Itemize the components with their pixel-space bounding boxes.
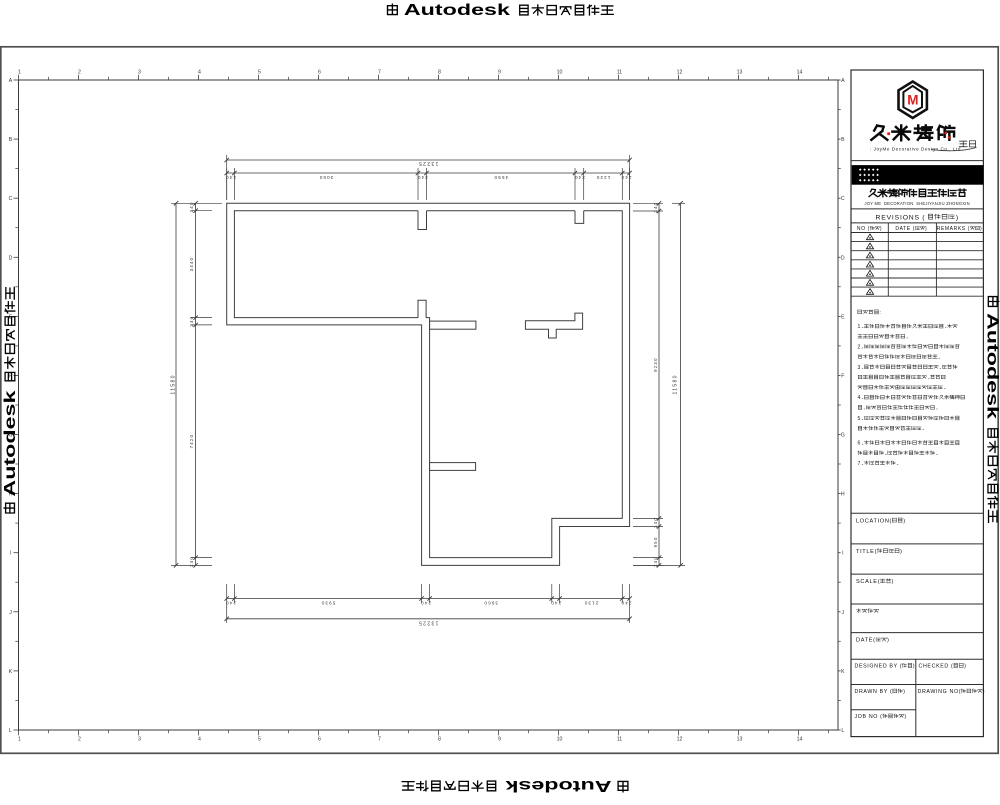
svg-text:Autodesk: Autodesk xyxy=(2,390,19,497)
svg-text:Autodesk: Autodesk xyxy=(505,777,612,794)
svg-text:B: B xyxy=(841,137,845,143)
svg-text:13225: 13225 xyxy=(418,160,439,166)
svg-text:7420: 7420 xyxy=(189,434,194,449)
svg-text:13: 13 xyxy=(737,737,743,743)
svg-text:): ) xyxy=(913,664,915,670)
svg-text:2: 2 xyxy=(78,737,81,743)
svg-text:I: I xyxy=(10,551,11,557)
svg-text:LOCATION(: LOCATION( xyxy=(856,518,892,524)
svg-text:Autodesk: Autodesk xyxy=(404,2,511,19)
svg-text:240: 240 xyxy=(653,202,658,213)
svg-text:C: C xyxy=(841,196,845,202)
svg-text:J: J xyxy=(9,610,12,616)
svg-text:): ) xyxy=(983,689,985,695)
svg-text:6: 6 xyxy=(318,737,321,743)
svg-text:10: 10 xyxy=(557,70,563,76)
svg-text:DATE(: DATE( xyxy=(856,638,876,644)
svg-text:I: I xyxy=(842,551,843,557)
svg-text:J: J xyxy=(842,610,845,616)
svg-text:): ) xyxy=(956,214,959,221)
svg-text:1220: 1220 xyxy=(596,175,611,180)
svg-text:TITLE(: TITLE( xyxy=(856,549,877,555)
svg-text:F: F xyxy=(841,373,844,379)
svg-text:11: 11 xyxy=(617,737,622,743)
svg-text:H: H xyxy=(841,492,845,498)
svg-text:D: D xyxy=(841,255,845,261)
svg-text:CHECKED (: CHECKED ( xyxy=(919,664,954,670)
svg-text:11580: 11580 xyxy=(171,374,177,394)
svg-text:12: 12 xyxy=(677,737,683,743)
svg-text:): ) xyxy=(903,518,906,524)
svg-text:5: 5 xyxy=(858,416,861,422)
svg-text:240: 240 xyxy=(420,600,431,605)
svg-text:240: 240 xyxy=(574,175,585,180)
svg-text:REMARKS (: REMARKS ( xyxy=(937,226,970,232)
svg-text:240: 240 xyxy=(621,175,632,180)
svg-text:10: 10 xyxy=(557,737,563,743)
svg-text:DATE (: DATE ( xyxy=(895,226,915,232)
svg-text:D: D xyxy=(9,255,13,261)
svg-text:): ) xyxy=(880,226,882,232)
svg-text:1: 1 xyxy=(18,70,21,76)
svg-text:A: A xyxy=(9,78,13,84)
svg-text:7: 7 xyxy=(378,737,381,743)
svg-text:3: 3 xyxy=(138,70,141,76)
svg-text:2: 2 xyxy=(78,70,81,76)
svg-text:240: 240 xyxy=(189,202,194,213)
svg-text:4: 4 xyxy=(858,395,861,401)
svg-text:1: 1 xyxy=(858,324,861,330)
svg-text:11: 11 xyxy=(617,70,622,76)
svg-text:4590: 4590 xyxy=(493,175,508,180)
svg-text:7: 7 xyxy=(858,461,861,467)
svg-text:3960: 3960 xyxy=(483,600,498,605)
svg-text:8: 8 xyxy=(438,737,441,743)
svg-text:240: 240 xyxy=(653,517,658,528)
svg-text:9: 9 xyxy=(498,737,501,743)
svg-text:12: 12 xyxy=(677,70,683,76)
svg-text:M: M xyxy=(907,93,918,108)
svg-text:REVISIONS: REVISIONS xyxy=(876,214,920,221)
svg-text:240: 240 xyxy=(189,556,194,567)
svg-text:A: A xyxy=(841,78,845,84)
svg-text:5: 5 xyxy=(258,70,261,76)
svg-text:): ) xyxy=(980,226,982,232)
svg-text:5930: 5930 xyxy=(321,600,336,605)
svg-text:): ) xyxy=(900,549,903,555)
svg-text:): ) xyxy=(903,689,905,695)
svg-text:2130: 2130 xyxy=(584,600,599,605)
svg-text:L: L xyxy=(9,728,12,734)
svg-text:JOB NO (: JOB NO ( xyxy=(855,714,883,720)
svg-text:DESIGNED BY (: DESIGNED BY ( xyxy=(855,664,903,670)
svg-text:3060: 3060 xyxy=(319,175,334,180)
svg-text:8: 8 xyxy=(438,70,441,76)
svg-text:K: K xyxy=(841,669,845,675)
svg-text::: : xyxy=(879,310,881,316)
svg-text:1: 1 xyxy=(18,737,21,743)
svg-text:C: C xyxy=(9,196,13,202)
svg-text:): ) xyxy=(964,664,966,670)
svg-text:5: 5 xyxy=(258,737,261,743)
svg-text:E: E xyxy=(841,314,845,320)
svg-text:14: 14 xyxy=(797,70,803,76)
svg-text:13: 13 xyxy=(737,70,743,76)
svg-text:240: 240 xyxy=(417,175,428,180)
svg-text:13225: 13225 xyxy=(418,619,439,625)
svg-text:6: 6 xyxy=(858,441,861,447)
svg-text:DRAWN BY (: DRAWN BY ( xyxy=(855,689,893,695)
svg-text:): ) xyxy=(887,638,890,644)
svg-text:3: 3 xyxy=(138,737,141,743)
svg-text:Autodesk: Autodesk xyxy=(984,313,1000,420)
svg-text:): ) xyxy=(925,226,927,232)
svg-text:G: G xyxy=(841,433,845,439)
svg-text:: JoyMe Decorative Design Co.,: : JoyMe Decorative Design Co., Ltd xyxy=(870,146,961,151)
svg-text:2: 2 xyxy=(858,344,861,350)
svg-text:L: L xyxy=(841,728,844,734)
svg-text:JOY ME DECORATION SHEJIYANJI: JOY ME DECORATION SHEJIYANJIU ZHONGXIN xyxy=(865,201,970,206)
svg-text:SCALE(: SCALE( xyxy=(856,579,880,585)
svg-text:240: 240 xyxy=(189,316,194,327)
svg-text:240: 240 xyxy=(225,175,236,180)
svg-text:B: B xyxy=(9,137,13,143)
svg-text:7: 7 xyxy=(378,70,381,76)
svg-text:): ) xyxy=(892,579,895,585)
svg-text:950: 950 xyxy=(653,537,658,548)
svg-text:DRAWING NO(: DRAWING NO( xyxy=(918,689,962,695)
svg-text:9: 9 xyxy=(498,70,501,76)
svg-text:4: 4 xyxy=(198,70,201,76)
svg-text:3440: 3440 xyxy=(189,257,194,272)
svg-text:(: ( xyxy=(922,214,925,221)
svg-text:4: 4 xyxy=(198,737,201,743)
svg-text:14: 14 xyxy=(797,737,803,743)
svg-text:11580: 11580 xyxy=(672,374,678,394)
svg-text:K: K xyxy=(9,669,13,675)
svg-text:3: 3 xyxy=(858,365,861,371)
svg-text:): ) xyxy=(904,714,906,720)
svg-text:NO (: NO ( xyxy=(857,226,870,232)
svg-text:6: 6 xyxy=(318,70,321,76)
svg-text:9230: 9230 xyxy=(653,357,658,372)
svg-text:240: 240 xyxy=(550,600,561,605)
